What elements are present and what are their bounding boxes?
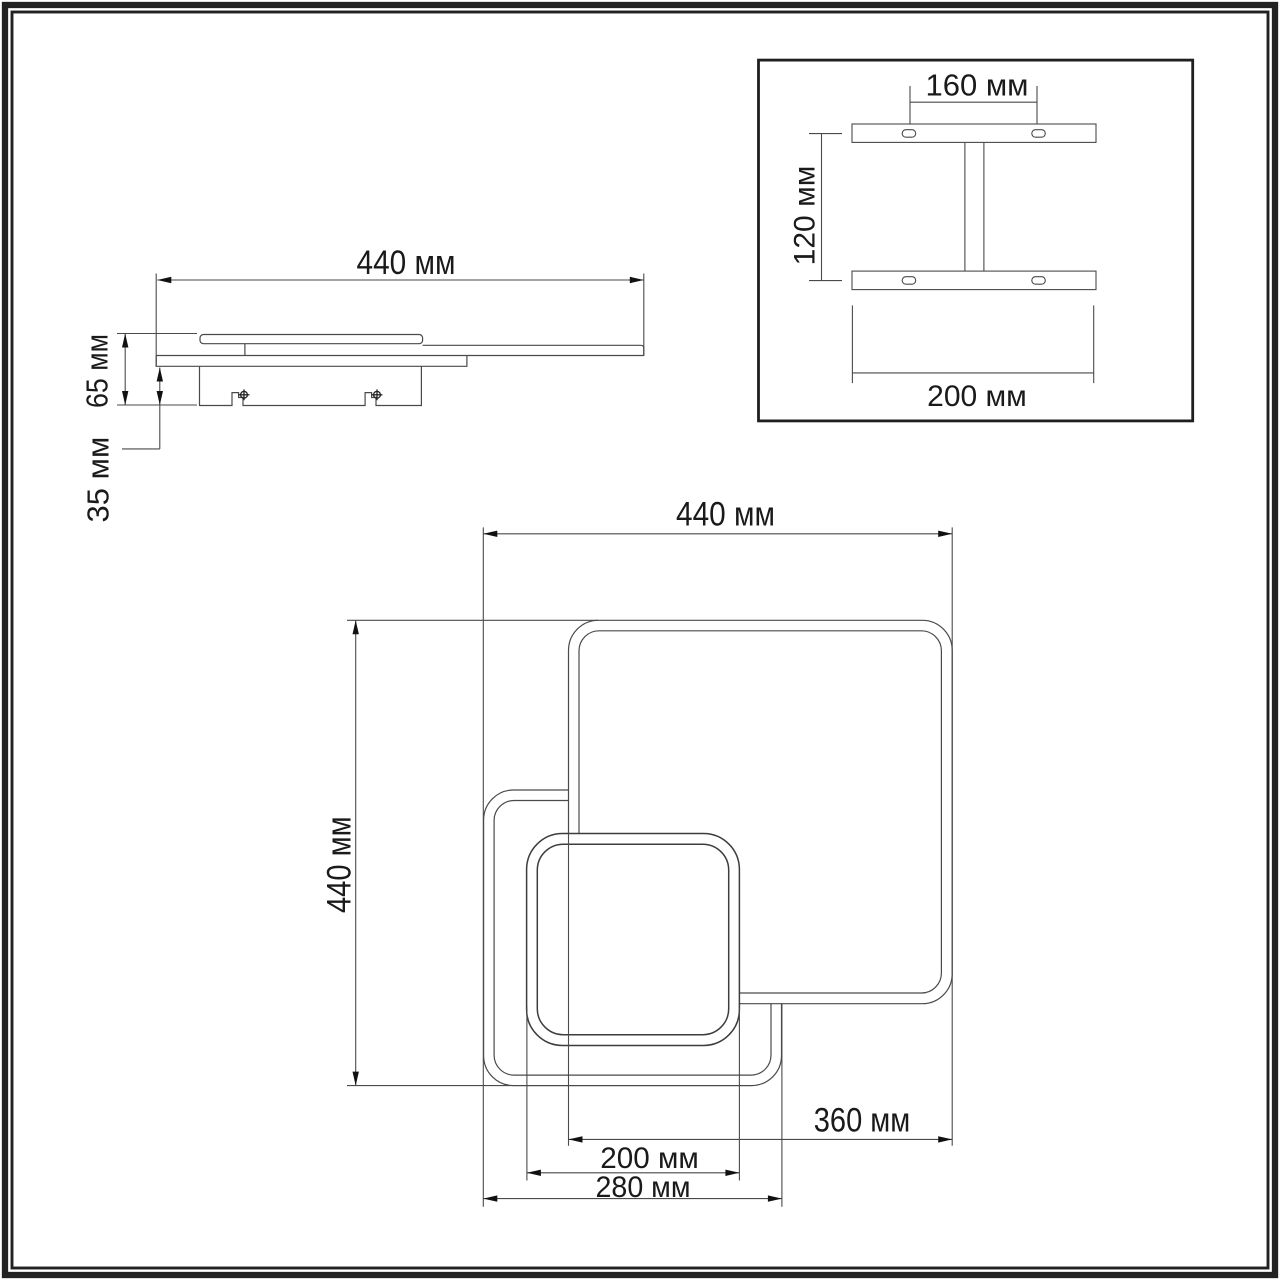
svg-text:440 мм: 440 мм [676, 496, 775, 534]
svg-text:120 мм: 120 мм [789, 166, 822, 266]
svg-text:440 мм: 440 мм [320, 816, 358, 913]
svg-text:360 мм: 360 мм [814, 1102, 911, 1140]
svg-text:35 мм: 35 мм [81, 437, 116, 523]
svg-text:200 мм: 200 мм [927, 380, 1027, 413]
svg-text:65 мм: 65 мм [80, 334, 115, 408]
svg-text:160 мм: 160 мм [926, 68, 1029, 103]
svg-text:440 мм: 440 мм [357, 244, 456, 282]
svg-text:280 мм: 280 мм [596, 1171, 691, 1204]
